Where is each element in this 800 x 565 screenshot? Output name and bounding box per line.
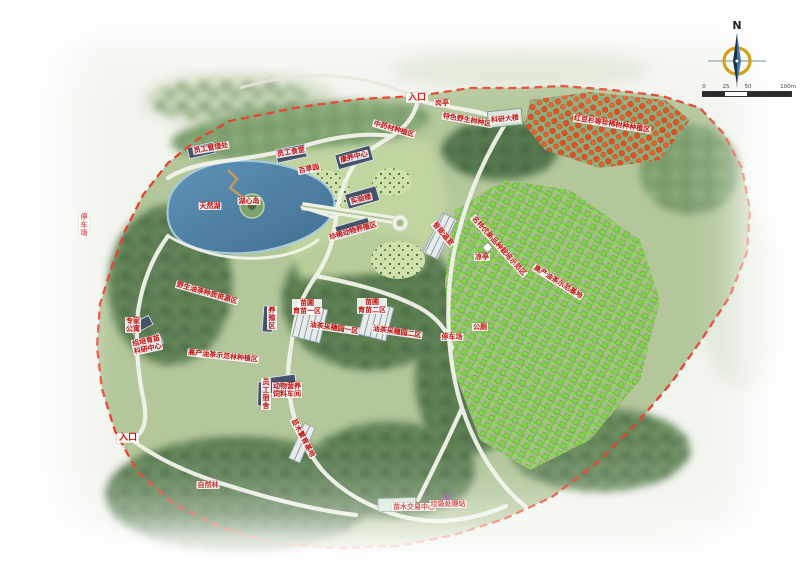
building-market: [378, 497, 416, 511]
compass-rose-icon: [706, 31, 768, 89]
scale-tick: 0: [702, 84, 706, 90]
building-research: [487, 108, 522, 127]
site-master-plan: 入口岗亭员工管理处员工食堂康养中心百草园实验楼珍稀动物养殖区湖心岛天然湖中药材种…: [0, 0, 800, 565]
building-feed-workshop: [267, 374, 297, 394]
scale-tick: 50: [745, 84, 752, 90]
scale-bar-ticks: 0 25 50 100m: [702, 84, 794, 91]
scale-tick: 25: [723, 84, 730, 90]
scale-bar-segments: [702, 91, 792, 97]
compass: N: [706, 20, 768, 93]
building-breeding: [262, 306, 274, 333]
map-canvas: [0, 0, 800, 565]
scale-bar: 0 25 50 100m: [702, 84, 794, 97]
building-dorm: [258, 382, 269, 406]
waste-station-marker: [444, 494, 449, 499]
scale-tick: 100m: [780, 84, 796, 90]
compass-north-label: N: [706, 20, 768, 31]
